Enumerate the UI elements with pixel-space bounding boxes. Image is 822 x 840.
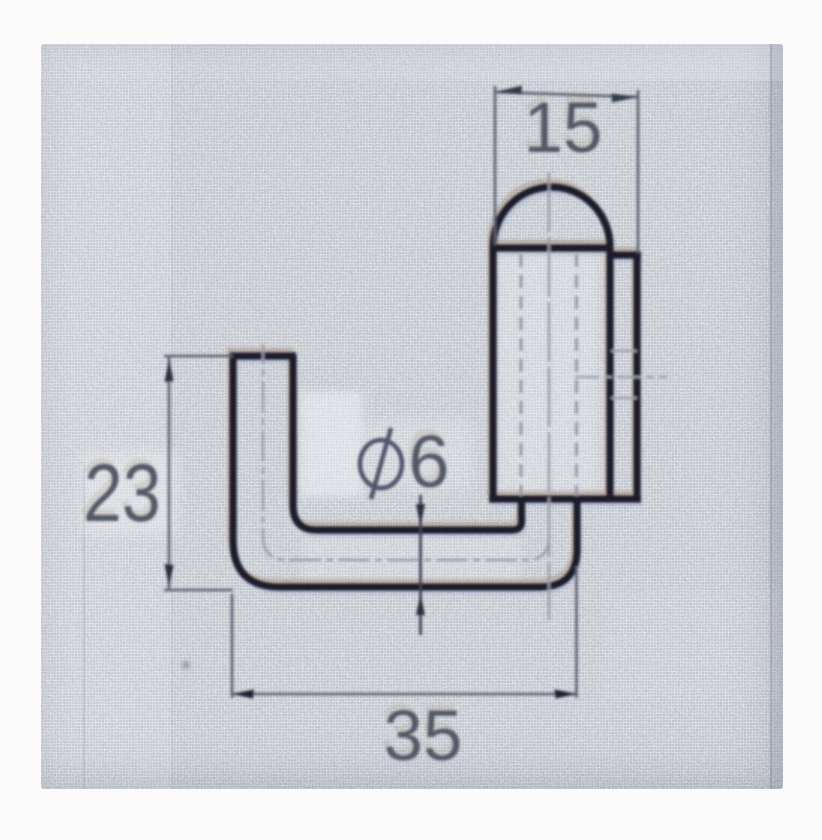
svg-text:15: 15	[524, 89, 603, 168]
svg-text:6: 6	[408, 420, 449, 503]
svg-text:35: 35	[384, 697, 463, 776]
svg-text:23: 23	[82, 448, 162, 540]
